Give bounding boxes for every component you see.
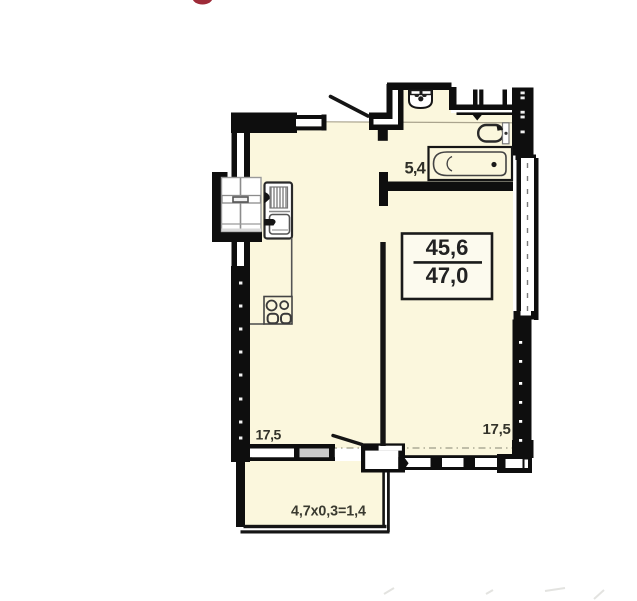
- svg-text:17,5: 17,5: [256, 427, 282, 443]
- svg-text:5,4: 5,4: [405, 160, 427, 178]
- svg-text:47,0: 47,0: [426, 263, 469, 288]
- svg-text:45,6: 45,6: [426, 235, 469, 260]
- svg-text:4,7x0,3=1,4: 4,7x0,3=1,4: [291, 504, 366, 520]
- svg-text:17,5: 17,5: [483, 421, 511, 438]
